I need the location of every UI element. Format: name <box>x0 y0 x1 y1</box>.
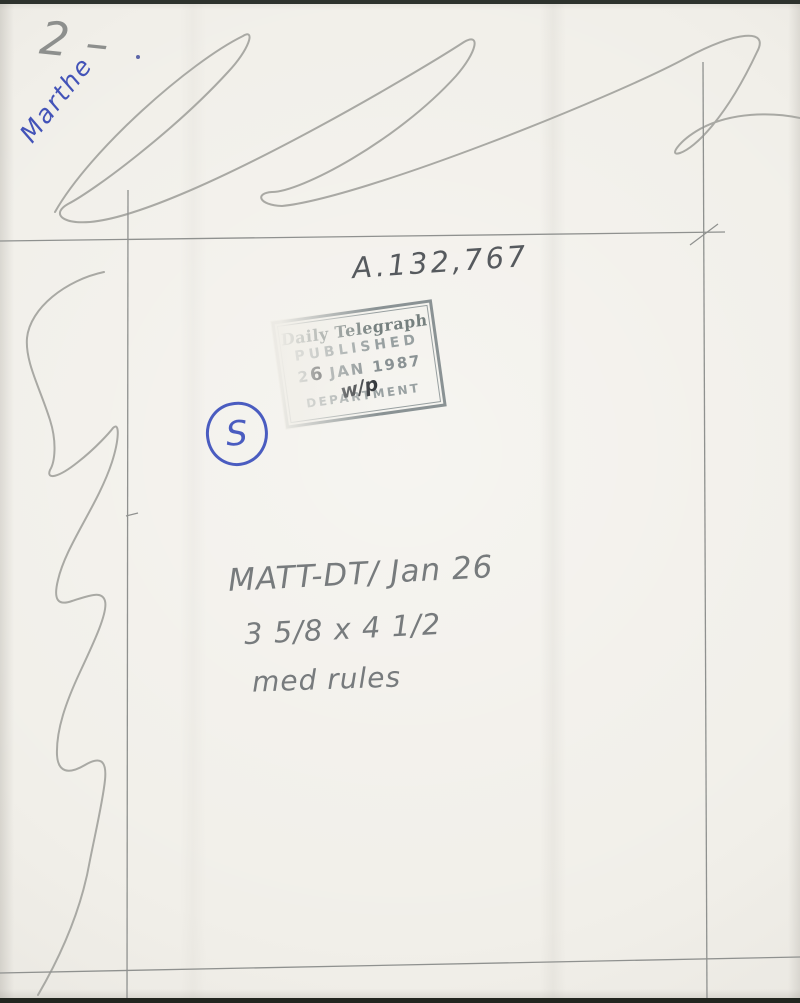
stamp-date-overwritten-digit: 6 <box>309 363 324 386</box>
pencil-scribble-left <box>27 272 118 995</box>
crop-line-top <box>0 232 725 241</box>
pencil-marks-layer <box>0 0 800 1003</box>
sizing-note-line: med rules <box>251 660 401 698</box>
crop-line-bottom <box>0 957 800 973</box>
pencil-scribble-top <box>55 34 800 222</box>
stamp-inner-border: Daily Telegraph PUBLISHED 26 JAN 1987 DE… <box>277 305 441 423</box>
grade-mark-letter: S <box>225 413 249 454</box>
crop-line-left <box>127 190 128 1003</box>
published-stamp: Daily Telegraph PUBLISHED 26 JAN 1987 DE… <box>271 299 446 428</box>
crop-line-right <box>703 62 707 1003</box>
ink-dot <box>136 55 140 59</box>
